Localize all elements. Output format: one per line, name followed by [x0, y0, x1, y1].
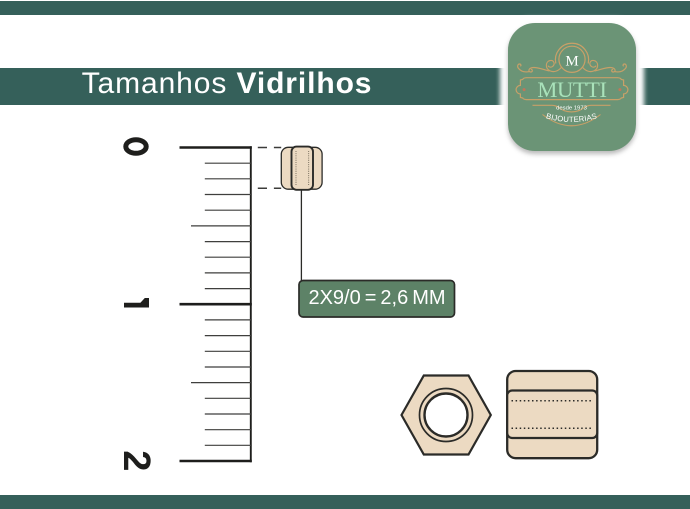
svg-text:2X9/0 = 2,6 MM: 2X9/0 = 2,6 MM: [308, 287, 445, 309]
svg-text:2: 2: [115, 450, 157, 471]
